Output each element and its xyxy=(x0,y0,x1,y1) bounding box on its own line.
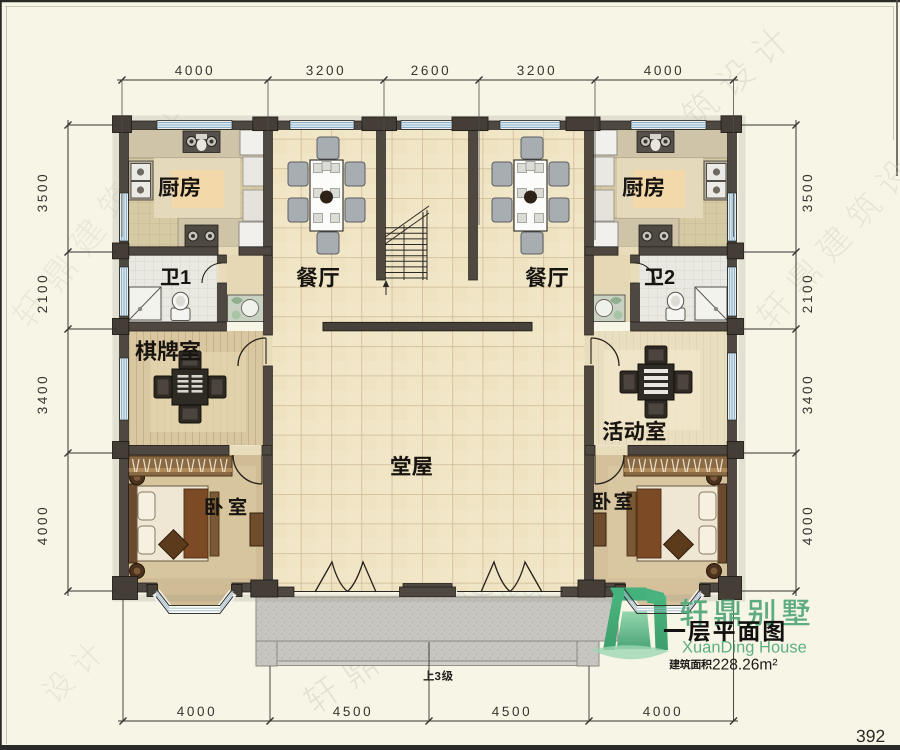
svg-text:3200: 3200 xyxy=(306,63,346,78)
svg-text:1: 1 xyxy=(180,267,191,289)
svg-text:392: 392 xyxy=(856,726,885,746)
svg-text:4500: 4500 xyxy=(333,704,373,719)
svg-text:2100: 2100 xyxy=(35,273,50,313)
svg-text:4500: 4500 xyxy=(492,704,532,719)
svg-text:228.26m²: 228.26m² xyxy=(712,657,777,674)
svg-text:3: 3 xyxy=(435,671,441,683)
svg-text:3400: 3400 xyxy=(35,374,50,414)
svg-text:3500: 3500 xyxy=(35,172,50,212)
svg-text:2: 2 xyxy=(664,267,675,289)
svg-text:2100: 2100 xyxy=(800,273,815,313)
svg-text:XuanDing House: XuanDing House xyxy=(682,639,807,657)
svg-text:4000: 4000 xyxy=(643,704,683,719)
svg-text:4000: 4000 xyxy=(175,63,215,78)
svg-text:4000: 4000 xyxy=(800,505,815,545)
svg-text:3400: 3400 xyxy=(800,374,815,414)
svg-text:4000: 4000 xyxy=(177,704,217,719)
svg-text:3500: 3500 xyxy=(800,172,815,212)
svg-text:4000: 4000 xyxy=(644,63,684,78)
svg-text:3200: 3200 xyxy=(517,63,557,78)
svg-text:4000: 4000 xyxy=(35,505,50,545)
svg-text:2600: 2600 xyxy=(411,63,451,78)
